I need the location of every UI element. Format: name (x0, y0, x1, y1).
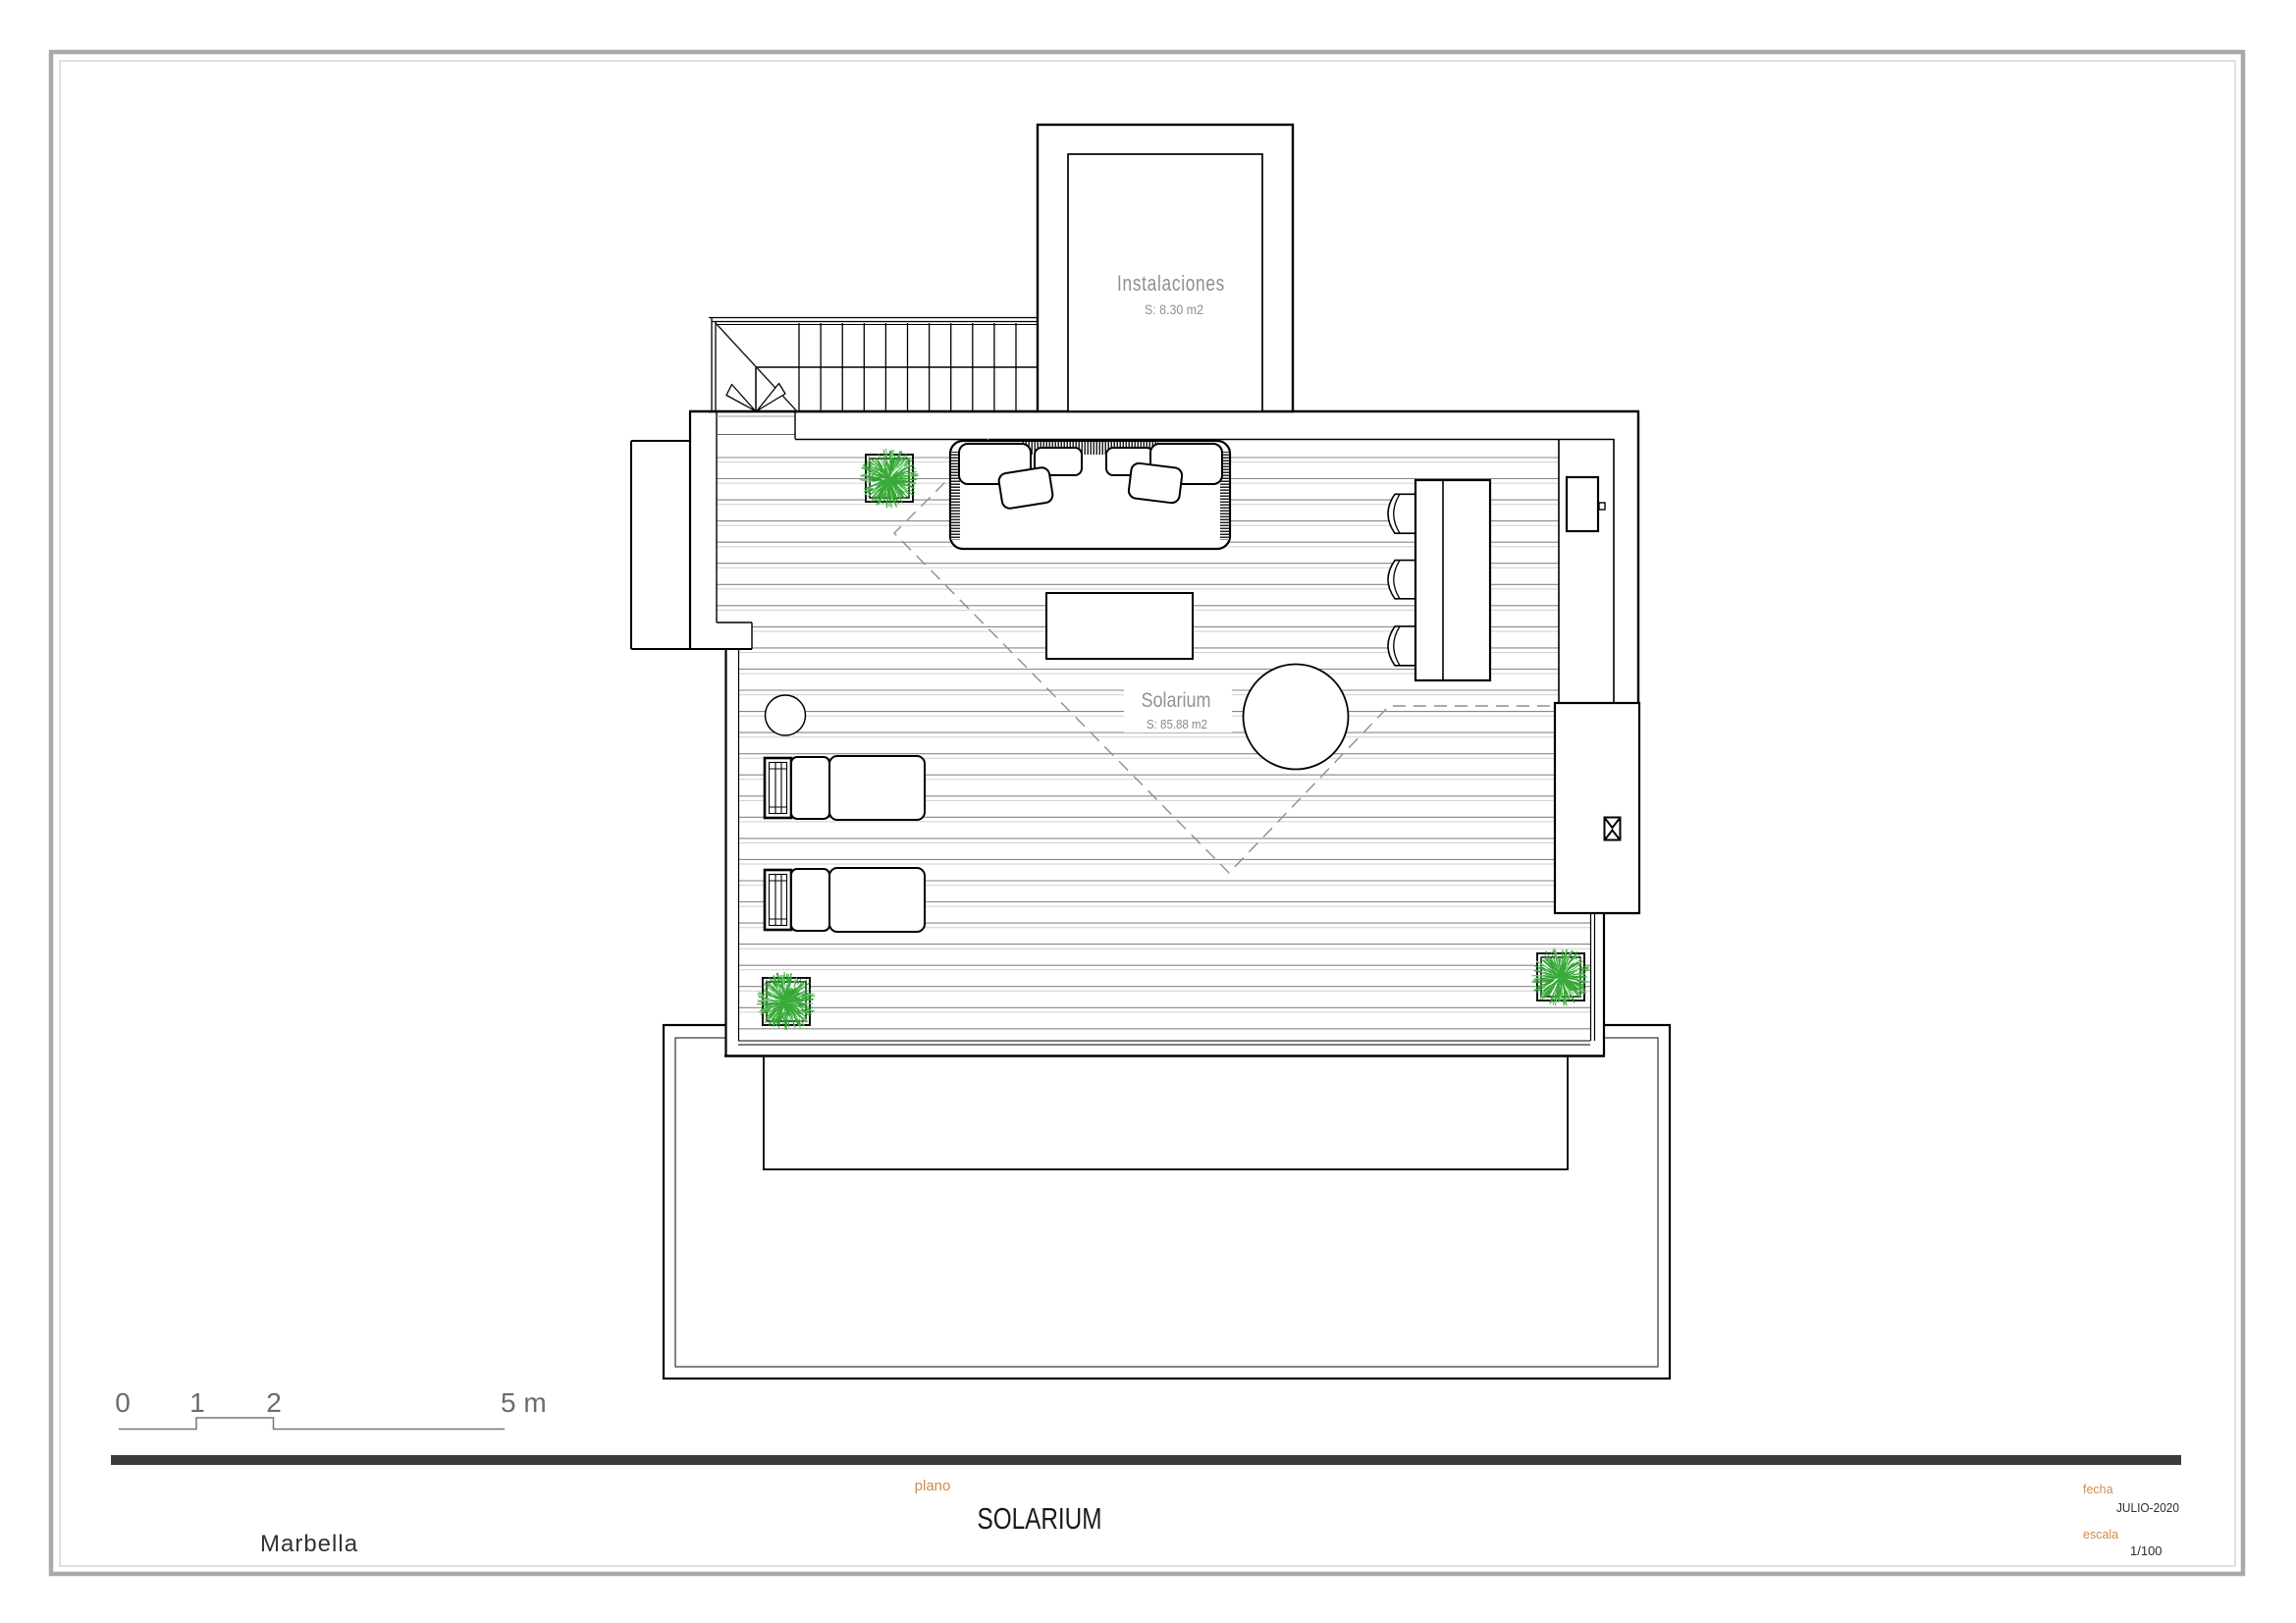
svg-text:1/100: 1/100 (2130, 1543, 2163, 1558)
svg-text:1: 1 (189, 1387, 205, 1418)
svg-text:Instalaciones: Instalaciones (1117, 271, 1225, 296)
svg-text:plano: plano (915, 1478, 951, 1494)
svg-text:5 m: 5 m (501, 1387, 547, 1418)
svg-text:Solarium: Solarium (1142, 689, 1211, 712)
svg-text:fecha: fecha (2083, 1483, 2113, 1496)
svg-text:escala: escala (2083, 1528, 2118, 1542)
svg-text:2: 2 (266, 1387, 282, 1418)
svg-text:Marbella: Marbella (260, 1531, 358, 1557)
svg-text:0: 0 (115, 1387, 131, 1418)
svg-text:SOLARIUM: SOLARIUM (978, 1501, 1102, 1536)
svg-text:JULIO-2020: JULIO-2020 (2116, 1500, 2179, 1515)
svg-text:S: 8.30 m2: S: 8.30 m2 (1145, 301, 1203, 317)
svg-text:S: 85.88 m2: S: 85.88 m2 (1147, 717, 1207, 731)
